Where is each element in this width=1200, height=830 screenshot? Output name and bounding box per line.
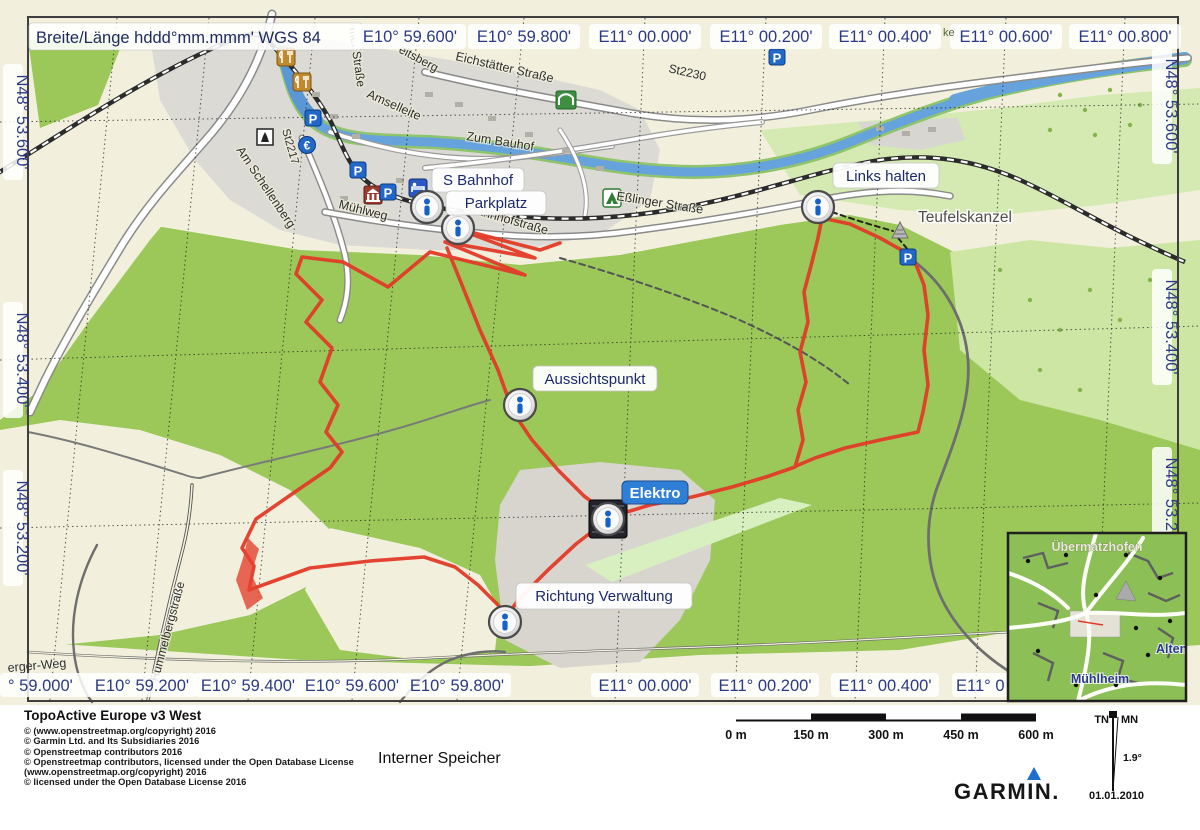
scale-label: 300 m <box>868 728 903 742</box>
map-product-name: TopoActive Europe v3 West <box>24 708 201 723</box>
svg-text:N48° 53.600': N48° 53.600' <box>1162 58 1180 153</box>
waypoint-label-richtung-verwaltung[interactable]: Richtung Verwaltung <box>516 583 692 609</box>
scale-label: 0 m <box>725 728 747 742</box>
waypoint-icon-elektro[interactable] <box>592 503 624 535</box>
svg-text:N48° 53.400': N48° 53.400' <box>13 312 31 407</box>
restaurant-icon <box>293 73 311 91</box>
coordinate-format-label: Breite/Länge hddd°mm.mmm' WGS 84 <box>29 23 362 50</box>
svg-text:E10° 59.600': E10° 59.600' <box>305 677 399 695</box>
svg-text:€: € <box>304 139 311 153</box>
overview-inset[interactable]: Übermatzhofen Alten Mühlheim <box>1008 533 1187 701</box>
svg-text:Aussichtspunkt: Aussichtspunkt <box>545 371 647 388</box>
svg-text:E11° 00.400': E11° 00.400' <box>839 28 932 46</box>
waypoint-label-s-bahnhof[interactable]: S Bahnhof <box>432 168 524 192</box>
svg-text:E11° 00.800': E11° 00.800' <box>1079 28 1172 46</box>
monument-icon <box>257 129 273 145</box>
magnetic-north-label: MN <box>1121 714 1138 726</box>
storage-label: Interner Speicher <box>378 750 501 768</box>
parking-icon: P <box>900 249 916 266</box>
copyright-line: © licensed under the Open Database Licen… <box>24 777 354 787</box>
place-label-teufelskanzel: Teufelskanzel <box>918 209 1012 226</box>
svg-text:N48° 53.600': N48° 53.600' <box>13 74 31 169</box>
waypoint-label-parkplatz[interactable]: Parkplatz <box>446 191 546 215</box>
svg-text:E11° 00.000': E11° 00.000' <box>599 677 692 695</box>
inset-label-uebermatzhofen: Übermatzhofen <box>1052 539 1143 554</box>
museum-icon <box>364 186 382 204</box>
svg-text:Parkplatz: Parkplatz <box>465 195 528 212</box>
waypoint-icon-parkplatz[interactable] <box>442 212 474 244</box>
garmin-logo: GARMIN. <box>954 779 1060 805</box>
restaurant-icon <box>277 48 295 66</box>
grid-label-top: E10° 59.600' E10° 59.800' E11° 00.000' E… <box>354 24 1181 49</box>
svg-text:° 59.000': ° 59.000' <box>8 677 73 695</box>
svg-text:E11° 00.200': E11° 00.200' <box>719 677 812 695</box>
scale-label: 600 m <box>1018 728 1053 742</box>
svg-text:E10° 59.800': E10° 59.800' <box>477 28 571 46</box>
declination-diagram: TN MN 1.9° 01.01.2010 <box>1075 703 1200 805</box>
grid-label-left: N48° 53.600' N48° 53.400' N48° 53.200' <box>3 64 31 586</box>
svg-text:E11° 00.400': E11° 00.400' <box>839 677 932 695</box>
map-canvas[interactable]: P € P P P <box>0 0 1200 705</box>
euro-icon: € <box>299 137 316 154</box>
grid-label-right: N48° 53.600' N48° 53.400' N48° 53.200' <box>1152 48 1180 563</box>
waypoint-icon-links-halten[interactable] <box>802 191 834 223</box>
svg-text:Links halten: Links halten <box>846 168 926 185</box>
svg-text:N48° 53.400': N48° 53.400' <box>1162 279 1180 374</box>
inset-label-alten: Alten <box>1156 642 1187 656</box>
true-north-label: TN <box>1094 714 1109 726</box>
inset-label-muehlheim: Mühlheim <box>1071 672 1129 686</box>
svg-text:Richtung Verwaltung: Richtung Verwaltung <box>535 588 673 605</box>
svg-text:S Bahnhof: S Bahnhof <box>443 172 514 189</box>
parking-icon: P <box>380 184 396 201</box>
copyright-line: (www.openstreetmap.org/copyright) 2016 <box>24 767 354 777</box>
parking-icon: P <box>305 110 321 127</box>
scale-bar: 0 m 150 m 300 m 450 m 600 m <box>700 706 1080 748</box>
svg-text:P: P <box>384 186 393 201</box>
svg-text:E11° 00.000': E11° 00.000' <box>599 28 692 46</box>
svg-text:P: P <box>904 251 913 266</box>
svg-text:E11° 00.200': E11° 00.200' <box>720 28 813 46</box>
copyright-block: © (www.openstreetmap.org/copyright) 2016… <box>24 726 354 788</box>
waypoint-label-elektro[interactable]: Elektro <box>622 481 688 504</box>
declination-date: 01.01.2010 <box>1089 790 1144 802</box>
declination-angle: 1.9° <box>1123 752 1142 764</box>
copyright-line: © Openstreetmap contributors 2016 <box>24 747 354 757</box>
garmin-map-export: P € P P P <box>0 0 1200 830</box>
parking-icon: P <box>350 162 366 179</box>
waypoint-label-aussichtspunkt[interactable]: Aussichtspunkt <box>533 366 657 391</box>
waypoint-label-links-halten[interactable]: Links halten <box>833 163 939 188</box>
svg-text:E10° 59.800': E10° 59.800' <box>410 677 504 695</box>
svg-text:E11° 0: E11° 0 <box>956 677 1005 695</box>
svg-text:P: P <box>354 164 363 179</box>
waypoint-icon-s-bahnhof[interactable] <box>411 191 443 223</box>
scale-label: 450 m <box>943 728 978 742</box>
bridge-icon <box>556 91 576 109</box>
svg-text:N48° 53.200': N48° 53.200' <box>13 480 31 575</box>
copyright-line: © Openstreetmap contributors, licensed u… <box>24 757 354 767</box>
svg-text:E10° 59.200': E10° 59.200' <box>95 677 189 695</box>
waypoint-icon-aussichtspunkt[interactable] <box>504 389 536 421</box>
parking-icon: P <box>769 49 785 66</box>
copyright-line: © (www.openstreetmap.org/copyright) 2016 <box>24 726 354 736</box>
copyright-line: © Garmin Ltd. and Its Subsidiaries 2016 <box>24 736 354 746</box>
svg-text:P: P <box>309 112 318 127</box>
grid-label-bottom: ° 59.000' E10° 59.200' E10° 59.400' E10°… <box>0 673 1008 697</box>
svg-text:E10° 59.600': E10° 59.600' <box>363 28 457 46</box>
svg-text:Elektro: Elektro <box>630 485 681 502</box>
scale-label: 150 m <box>793 728 828 742</box>
waypoint-icon-richtung-verwaltung[interactable] <box>489 606 521 638</box>
svg-text:Breite/Länge hddd°mm.mmm' WGS: Breite/Länge hddd°mm.mmm' WGS 84 <box>36 29 321 47</box>
partial-map-label: ke <box>943 27 955 39</box>
svg-text:P: P <box>773 51 782 66</box>
svg-text:E10° 59.400': E10° 59.400' <box>201 677 295 695</box>
garmin-triangle-icon <box>1027 767 1041 780</box>
svg-text:E11° 00.600': E11° 00.600' <box>960 28 1053 46</box>
